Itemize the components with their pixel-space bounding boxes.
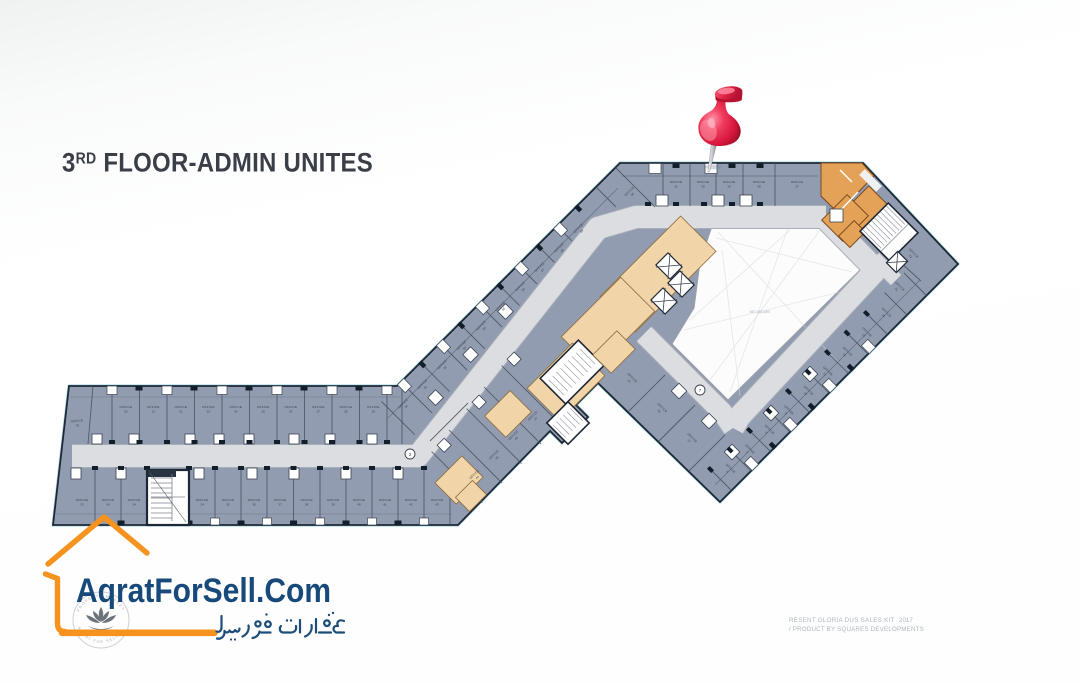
svg-text:26: 26: [289, 409, 293, 413]
svg-text:31: 31: [674, 184, 678, 188]
svg-text:40: 40: [357, 502, 361, 506]
svg-text:28: 28: [344, 409, 348, 413]
svg-text:39: 39: [331, 502, 335, 506]
svg-text:2017: 2017: [899, 617, 913, 624]
svg-text:20: 20: [124, 409, 128, 413]
svg-text:RESENT GLORIA DUS SALES KIT: RESENT GLORIA DUS SALES KIT: [789, 617, 895, 624]
svg-text:25: 25: [262, 409, 266, 413]
svg-text:38: 38: [305, 502, 309, 506]
svg-text:AqratForSell.Com: AqratForSell.Com: [76, 572, 331, 610]
svg-text:OFFICE: OFFICE: [431, 498, 444, 502]
svg-text:22: 22: [179, 409, 183, 413]
svg-text:OFFICE: OFFICE: [312, 405, 325, 409]
svg-text:OFFICE: OFFICE: [285, 405, 298, 409]
svg-text:OFFICE: OFFICE: [222, 498, 235, 502]
svg-text:OFFICE: OFFICE: [379, 498, 392, 502]
svg-text:OFFICE: OFFICE: [723, 180, 736, 184]
svg-text:OFFICE: OFFICE: [230, 405, 243, 409]
svg-text:/ PRODUCT BY SQUARES DEVELOPME: / PRODUCT BY SQUARES DEVELOPMENTS: [789, 626, 924, 633]
svg-text:21: 21: [152, 409, 156, 413]
svg-text:OFFICE: OFFICE: [753, 180, 766, 184]
svg-text:OFFICE: OFFICE: [405, 498, 418, 502]
svg-text:34: 34: [106, 502, 110, 506]
svg-text:OFFICE: OFFICE: [340, 405, 353, 409]
svg-text:29: 29: [727, 184, 731, 188]
svg-text:30: 30: [701, 184, 705, 188]
svg-text:OFFICE: OFFICE: [147, 405, 160, 409]
svg-text:3RD FLOOR-ADMIN UNITES: 3RD FLOOR-ADMIN UNITES: [62, 148, 373, 178]
svg-text:OFFICE: OFFICE: [300, 498, 313, 502]
svg-text:OFFICE: OFFICE: [128, 498, 141, 502]
svg-text:27: 27: [317, 409, 321, 413]
svg-text:28: 28: [757, 184, 761, 188]
svg-text:OFFICE: OFFICE: [327, 498, 340, 502]
svg-text:35: 35: [226, 502, 230, 506]
svg-text:OFFICE: OFFICE: [196, 498, 209, 502]
svg-text:OFFICE: OFFICE: [76, 498, 89, 502]
svg-text:42: 42: [409, 502, 413, 506]
svg-text:OFFICE: OFFICE: [202, 405, 215, 409]
svg-text:37: 37: [278, 502, 282, 506]
svg-text:43: 43: [435, 502, 439, 506]
svg-text:27: 27: [795, 184, 799, 188]
svg-text:23: 23: [207, 409, 211, 413]
svg-text:OFFICE: OFFICE: [670, 180, 683, 184]
svg-text:29: 29: [372, 409, 376, 413]
svg-text:OFFICE: OFFICE: [248, 498, 261, 502]
svg-text:OFFICE: OFFICE: [367, 405, 380, 409]
svg-text:OFFICE: OFFICE: [257, 405, 270, 409]
svg-text:OFFICE: OFFICE: [102, 498, 115, 502]
svg-text:OFFICE: OFFICE: [274, 498, 287, 502]
svg-text:24: 24: [234, 409, 238, 413]
svg-text:34: 34: [200, 502, 204, 506]
svg-text:33: 33: [80, 502, 84, 506]
svg-text:NET SQUARE: NET SQUARE: [750, 310, 771, 314]
svg-text:OFFICE: OFFICE: [175, 405, 188, 409]
svg-text:OFFICE: OFFICE: [791, 180, 804, 184]
svg-text:41: 41: [383, 502, 387, 506]
svg-text:OFFICE: OFFICE: [697, 180, 710, 184]
svg-text:OFFICE: OFFICE: [353, 498, 366, 502]
svg-text:36: 36: [252, 502, 256, 506]
svg-text:34: 34: [132, 502, 136, 506]
svg-text:OFFICE: OFFICE: [120, 405, 133, 409]
